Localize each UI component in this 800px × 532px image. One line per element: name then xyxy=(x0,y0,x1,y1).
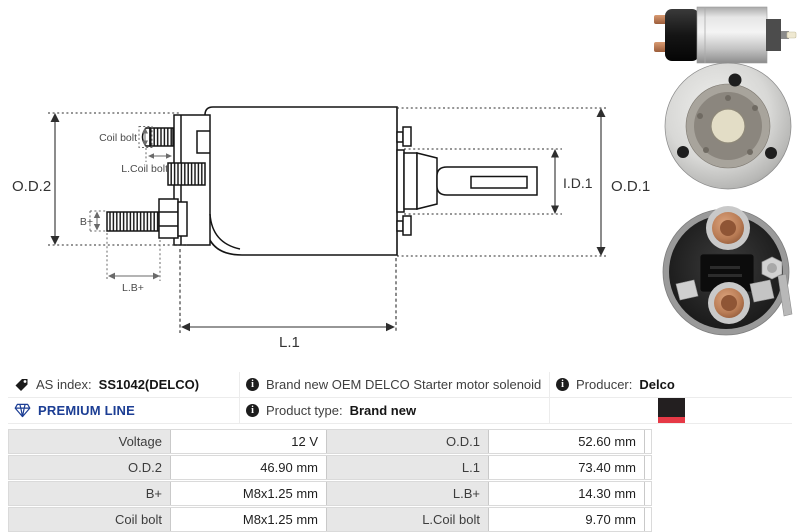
solenoid-shaft xyxy=(397,127,537,235)
spec-value: 12 V xyxy=(170,430,327,453)
table-row: Voltage 12 V O.D.1 52.60 mm xyxy=(8,429,652,454)
label-od1: O.D.1 xyxy=(611,178,650,195)
table-row: Coil bolt M8x1.25 mm L.Coil bolt 9.70 mm xyxy=(8,507,652,532)
spec-value: 73.40 mm xyxy=(488,456,645,479)
product-photo-side-view[interactable] xyxy=(652,6,798,64)
label-id1: I.D.1 xyxy=(563,175,593,191)
info-icon xyxy=(246,378,259,391)
dim-l1 xyxy=(180,249,396,333)
spec-label: L.Coil bolt xyxy=(327,508,488,531)
premium-line-cell: PREMIUM LINE xyxy=(8,398,240,424)
as-index-cell: AS index: SS1042(DELCO) xyxy=(8,372,240,398)
technical-diagram: O.D.2 O.D.1 I.D.1 L.1 Coil bolt L.Coil b… xyxy=(0,0,650,372)
spec-label: Coil bolt xyxy=(9,508,170,531)
spec-label: L.1 xyxy=(327,456,488,479)
spec-label: B+ xyxy=(9,482,170,505)
diamond-icon xyxy=(14,403,31,418)
solenoid-body xyxy=(205,107,397,255)
label-l-coil-bolt: L.Coil bolt xyxy=(121,163,168,175)
label-od2: O.D.2 xyxy=(12,178,51,195)
spec-label: O.D.1 xyxy=(327,430,488,453)
spec-value: 52.60 mm xyxy=(488,430,645,453)
product-type-cell: Product type: Brand new xyxy=(240,398,550,424)
product-page: O.D.2 O.D.1 I.D.1 L.1 Coil bolt L.Coil b… xyxy=(0,0,800,532)
spec-table: Voltage 12 V O.D.1 52.60 mm O.D.2 46.90 … xyxy=(8,429,652,532)
label-l-b-plus: L.B+ xyxy=(122,282,144,294)
spec-label: O.D.2 xyxy=(9,456,170,479)
product-type-label: Product type: xyxy=(266,403,343,418)
as-index-label: AS index: xyxy=(36,377,92,392)
brand-logo-cell xyxy=(550,398,792,424)
spec-value: 14.30 mm xyxy=(488,482,645,505)
table-row: B+ M8x1.25 mm L.B+ 14.30 mm xyxy=(8,481,652,506)
label-coil-bolt: Coil bolt xyxy=(99,132,137,144)
premium-line-label: PREMIUM LINE xyxy=(38,403,135,418)
brand-logo xyxy=(658,398,685,423)
as-index-value: SS1042(DELCO) xyxy=(99,377,199,392)
product-description: Brand new OEM DELCO Starter motor soleno… xyxy=(266,377,541,392)
description-cell: Brand new OEM DELCO Starter motor soleno… xyxy=(240,372,550,398)
label-l1: L.1 xyxy=(279,334,300,351)
dim-l-coil-bolt xyxy=(146,148,172,162)
tag-icon xyxy=(14,377,29,392)
spec-value: 9.70 mm xyxy=(488,508,645,531)
spec-label: L.B+ xyxy=(327,482,488,505)
spec-value: 46.90 mm xyxy=(170,456,327,479)
spec-value: M8x1.25 mm xyxy=(170,508,327,531)
spec-label: Voltage xyxy=(9,430,170,453)
producer-cell: Producer: Delco xyxy=(550,372,792,398)
dim-lb-plus xyxy=(107,233,160,281)
product-info-table: AS index: SS1042(DELCO) Brand new OEM DE… xyxy=(8,372,792,424)
product-type-value: Brand new xyxy=(350,403,416,418)
info-icon xyxy=(246,404,259,417)
product-photo-front-face[interactable] xyxy=(652,58,798,194)
producer-value: Delco xyxy=(639,377,674,392)
table-row: O.D.2 46.90 mm L.1 73.40 mm xyxy=(8,455,652,480)
spec-value: M8x1.25 mm xyxy=(170,482,327,505)
info-icon xyxy=(556,378,569,391)
producer-label: Producer: xyxy=(576,377,632,392)
label-b-plus: B+ xyxy=(80,216,93,228)
product-photo-terminal-face[interactable] xyxy=(650,196,798,356)
